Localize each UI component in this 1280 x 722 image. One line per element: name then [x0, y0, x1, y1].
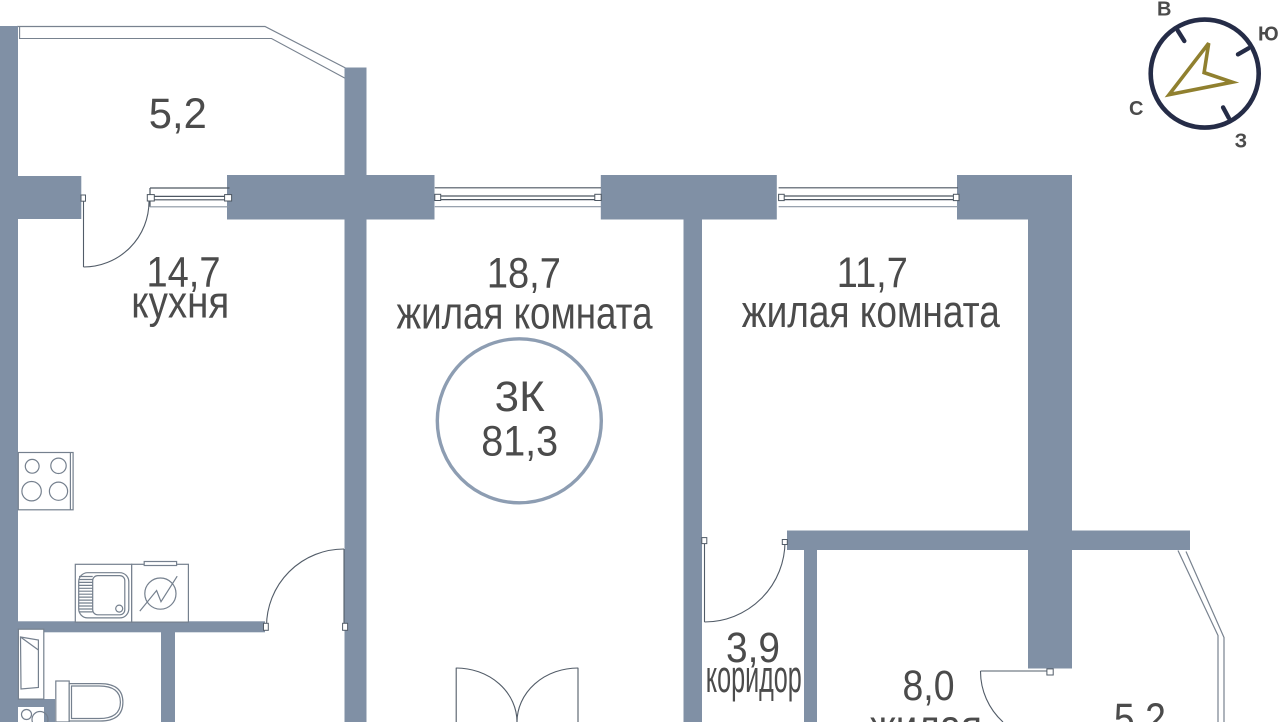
svg-text:С: С: [1129, 98, 1143, 120]
svg-text:5,2: 5,2: [149, 90, 207, 138]
svg-text:В: В: [1157, 0, 1171, 21]
svg-text:81,3: 81,3: [481, 418, 558, 466]
svg-text:Ю: Ю: [1258, 23, 1279, 45]
svg-text:3К: 3К: [495, 373, 545, 421]
svg-text:жилая комната: жилая комната: [742, 286, 1001, 337]
svg-text:жилая комната: жилая комната: [397, 288, 654, 339]
svg-text:5,2: 5,2: [1114, 695, 1166, 722]
svg-text:коридор: коридор: [706, 651, 802, 702]
svg-text:жилая: жилая: [870, 701, 982, 722]
svg-text:кухня: кухня: [131, 277, 229, 328]
svg-text:З: З: [1235, 131, 1248, 153]
